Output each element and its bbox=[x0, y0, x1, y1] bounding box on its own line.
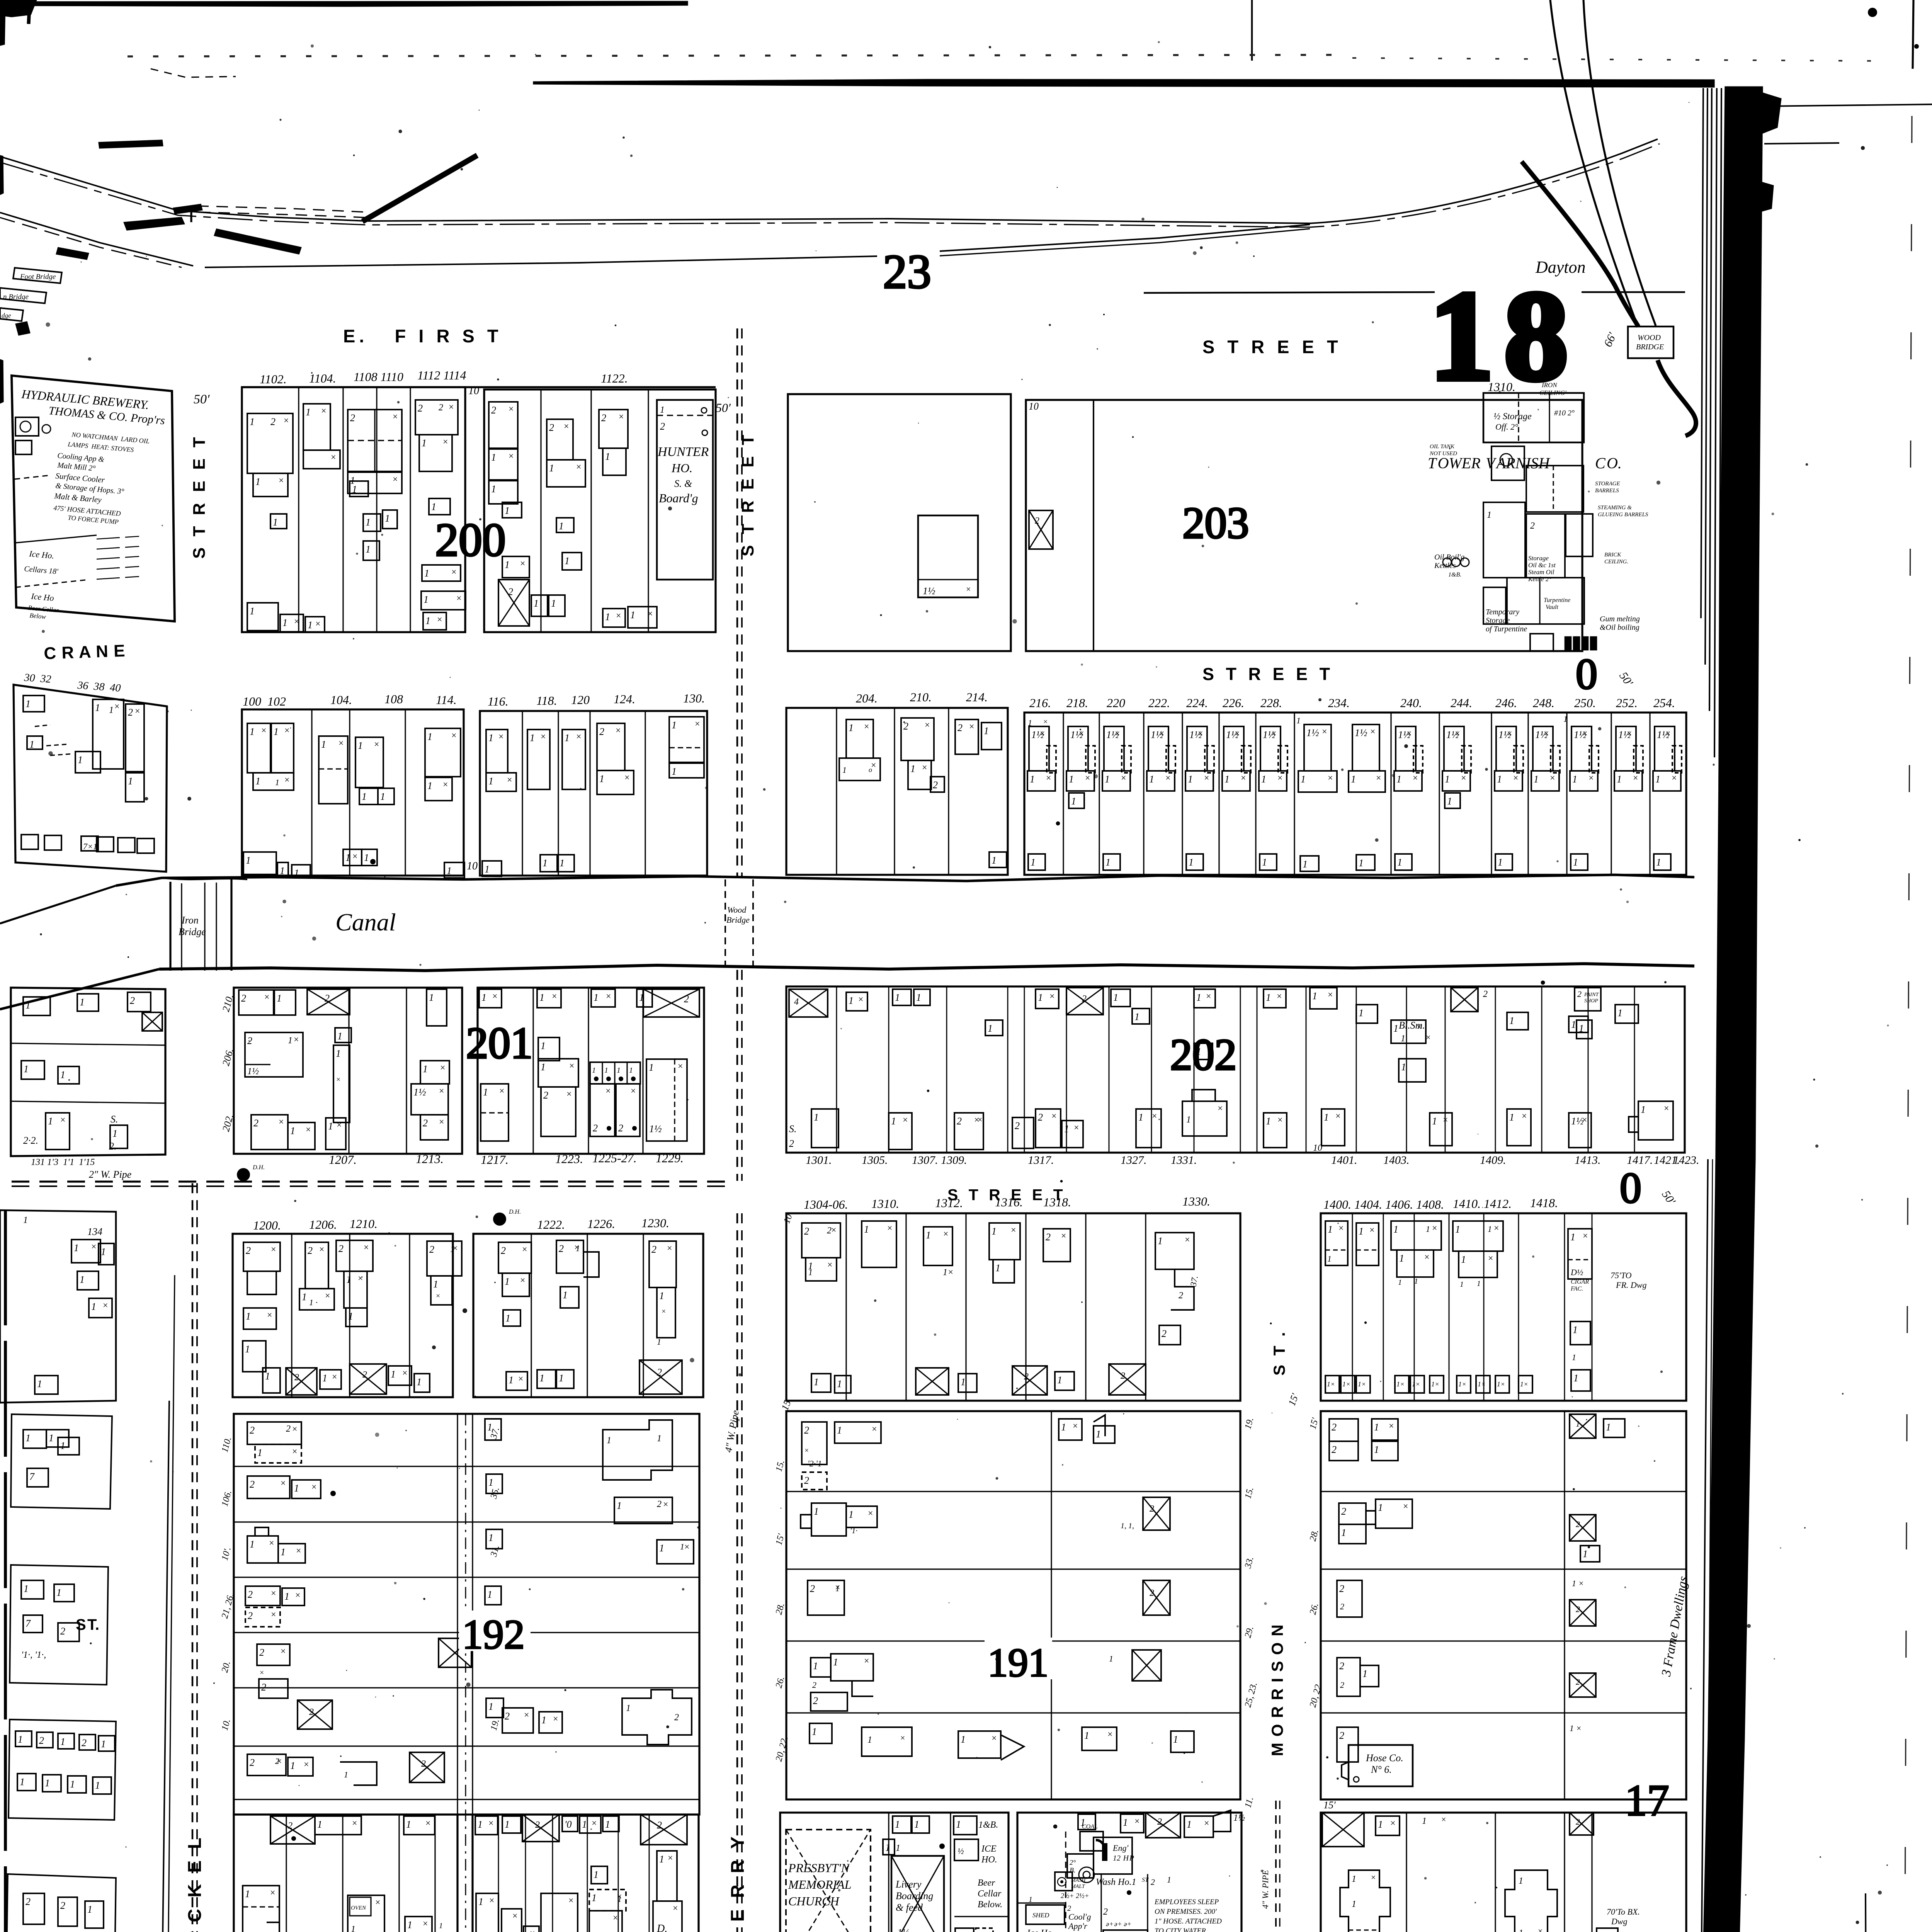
svg-text:×: × bbox=[1204, 1818, 1209, 1828]
svg-text:1206.: 1206. bbox=[309, 1218, 337, 1231]
svg-text:1: 1 bbox=[439, 1922, 443, 1930]
svg-text:1½: 1½ bbox=[649, 1123, 662, 1134]
svg-text:1: 1 bbox=[246, 855, 251, 866]
svg-text:0: 0 bbox=[1620, 1164, 1641, 1212]
svg-text:×: × bbox=[616, 611, 621, 621]
svg-text:×: × bbox=[1376, 773, 1381, 783]
svg-text:×: × bbox=[60, 1115, 66, 1125]
svg-text:SHED: SHED bbox=[1032, 1912, 1049, 1919]
svg-text:1: 1 bbox=[1030, 774, 1035, 785]
svg-text:ʹ1·: ʹ1· bbox=[850, 1527, 857, 1535]
svg-text:×: × bbox=[624, 773, 630, 783]
svg-text:1317.: 1317. bbox=[1028, 1154, 1054, 1167]
svg-text:Appʹr: Appʹr bbox=[1068, 1921, 1087, 1931]
svg-text:1: 1 bbox=[559, 520, 564, 532]
svg-text:1: 1 bbox=[576, 1243, 580, 1253]
svg-text:2: 2 bbox=[1530, 521, 1535, 531]
svg-text:OIL TANK: OIL TANK bbox=[1430, 444, 1455, 450]
svg-text:104.: 104. bbox=[330, 693, 352, 707]
svg-text:E. F I R S T: E. F I R S T bbox=[343, 326, 502, 346]
svg-text:×: × bbox=[969, 722, 975, 732]
svg-text:10: 10 bbox=[1029, 401, 1039, 412]
svg-text:1: 1 bbox=[1138, 1112, 1143, 1123]
svg-text:1210.: 1210. bbox=[350, 1217, 378, 1231]
svg-text:1: 1 bbox=[1432, 1116, 1437, 1127]
svg-text:1418.: 1418. bbox=[1530, 1196, 1558, 1210]
svg-text:×: × bbox=[1390, 1818, 1396, 1828]
svg-text:1316.: 1316. bbox=[995, 1195, 1023, 1209]
svg-text:S T R E E T: S T R E E T bbox=[1202, 337, 1342, 357]
svg-text:×: × bbox=[296, 1546, 301, 1556]
svg-text:1: 1 bbox=[1393, 1224, 1398, 1235]
svg-text:×: × bbox=[440, 1063, 446, 1073]
svg-text:1: 1 bbox=[992, 855, 997, 866]
svg-text:×: × bbox=[576, 732, 582, 742]
svg-text:2: 2 bbox=[618, 1122, 623, 1134]
svg-text:ə+ ə+ ə+: ə+ ə+ ə+ bbox=[1106, 1920, 1131, 1928]
svg-text:×: × bbox=[423, 1919, 428, 1929]
svg-text:1: 1 bbox=[95, 1780, 100, 1791]
svg-text:×: × bbox=[1085, 773, 1090, 783]
svg-text:1: 1 bbox=[626, 1703, 631, 1713]
svg-text:Bridge: Bridge bbox=[726, 915, 750, 925]
svg-text:S.: S. bbox=[789, 1123, 797, 1134]
svg-text:1: 1 bbox=[1509, 1112, 1514, 1123]
svg-text:1301.: 1301. bbox=[806, 1154, 832, 1167]
svg-text:201: 201 bbox=[466, 1019, 533, 1068]
svg-text:2: 2 bbox=[674, 1713, 679, 1723]
svg-text:o: o bbox=[869, 766, 872, 774]
svg-text:×: × bbox=[270, 1888, 276, 1898]
svg-text:STEAMING &: STEAMING & bbox=[1598, 505, 1632, 511]
svg-text:1: 1 bbox=[505, 1819, 510, 1830]
svg-text:S T R E E T: S T R E E T bbox=[190, 434, 209, 559]
svg-text:1: 1 bbox=[1399, 1253, 1404, 1264]
svg-text:×: × bbox=[667, 1243, 672, 1253]
svg-text:7: 7 bbox=[26, 1618, 31, 1629]
svg-text:216.: 216. bbox=[1029, 696, 1051, 710]
svg-text:×: × bbox=[858, 995, 864, 1005]
svg-text:1: 1 bbox=[617, 1894, 622, 1904]
svg-text:1: 1 bbox=[328, 1121, 333, 1132]
svg-text:1: 1 bbox=[336, 1048, 341, 1059]
svg-text:1: 1 bbox=[1393, 1023, 1398, 1034]
svg-text:1: 1 bbox=[344, 1770, 348, 1779]
svg-text:1: 1 bbox=[391, 1369, 396, 1380]
svg-text:1: 1 bbox=[366, 544, 371, 555]
svg-text:1: 1 bbox=[849, 722, 854, 733]
svg-text:×: × bbox=[673, 1903, 678, 1913]
svg-text:1: 1 bbox=[1069, 774, 1074, 785]
svg-text:1: 1 bbox=[864, 1224, 869, 1235]
svg-text:Below.: Below. bbox=[978, 1900, 1002, 1910]
svg-text:1: 1 bbox=[594, 992, 599, 1003]
svg-text:1: 1 bbox=[1352, 1899, 1356, 1909]
svg-text:2: 2 bbox=[933, 779, 938, 791]
svg-text:192: 192 bbox=[462, 1612, 525, 1658]
svg-text:×: × bbox=[260, 1668, 264, 1677]
svg-text:1: 1 bbox=[250, 1539, 255, 1550]
svg-text:1½: 1½ bbox=[1355, 727, 1367, 738]
svg-text:1: 1 bbox=[592, 1892, 597, 1903]
svg-text:1: 1 bbox=[1071, 796, 1076, 807]
svg-text:ʹ1·, ʹ1·,: ʹ1·, ʹ1·, bbox=[21, 1650, 46, 1660]
svg-text:1310.: 1310. bbox=[1488, 380, 1515, 394]
svg-text:1: 1 bbox=[814, 1506, 819, 1517]
svg-text:1: 1 bbox=[629, 1066, 633, 1075]
svg-text:×: × bbox=[498, 732, 504, 742]
svg-text:#10 2°: #10 2° bbox=[1554, 409, 1575, 417]
svg-text:1: 1 bbox=[541, 1061, 546, 1073]
svg-text:1: 1 bbox=[60, 1736, 65, 1747]
svg-text:S.: S. bbox=[111, 1114, 118, 1125]
svg-text:×: × bbox=[831, 1225, 837, 1235]
svg-text:×: × bbox=[648, 609, 653, 619]
svg-text:1: 1 bbox=[1113, 992, 1118, 1003]
svg-text:×: × bbox=[1609, 1930, 1614, 1932]
svg-text:203: 203 bbox=[1182, 498, 1249, 548]
svg-text:1×: 1× bbox=[1412, 1380, 1420, 1388]
svg-text:1: 1 bbox=[24, 1063, 29, 1075]
svg-text:2: 2 bbox=[957, 1116, 962, 1127]
svg-text:1: 1 bbox=[1563, 714, 1568, 724]
svg-text:T OWER V ARNISH: T OWER V ARNISH bbox=[1428, 454, 1551, 472]
svg-text:×: × bbox=[606, 992, 611, 1002]
svg-text:1: 1 bbox=[87, 1904, 92, 1915]
svg-text:1: 1 bbox=[1477, 1279, 1481, 1288]
svg-text:×: × bbox=[1550, 773, 1555, 783]
svg-text:224.: 224. bbox=[1186, 696, 1208, 710]
svg-text:7×1: 7×1 bbox=[83, 842, 97, 851]
svg-text:1: 1 bbox=[835, 1583, 840, 1593]
svg-text:2: 2 bbox=[804, 1425, 809, 1436]
svg-text:1: 1 bbox=[605, 611, 610, 622]
svg-text:1: 1 bbox=[1296, 716, 1301, 725]
svg-text:Temporary: Temporary bbox=[1486, 608, 1519, 616]
svg-text:2: 2 bbox=[957, 722, 963, 733]
svg-text:½ Storage: ½ Storage bbox=[1493, 412, 1532, 422]
svg-text:1: 1 bbox=[617, 1500, 622, 1511]
svg-text:1: 1 bbox=[24, 1583, 29, 1594]
svg-text:×: × bbox=[524, 1710, 529, 1720]
svg-text:1: 1 bbox=[849, 1509, 854, 1520]
svg-text:FAC.: FAC. bbox=[1570, 1286, 1583, 1292]
svg-text:×: × bbox=[332, 1372, 337, 1382]
svg-text:1½: 1½ bbox=[413, 1087, 426, 1098]
svg-text:1: 1 bbox=[1519, 1928, 1523, 1932]
svg-text:1: 1 bbox=[78, 754, 83, 765]
svg-text:×: × bbox=[592, 1818, 597, 1828]
svg-text:D.H.: D.H. bbox=[509, 1209, 521, 1215]
svg-text:254.: 254. bbox=[1653, 696, 1675, 710]
svg-text:×: × bbox=[1633, 773, 1638, 783]
svg-text:2: 2 bbox=[1035, 516, 1039, 526]
svg-text:1: 1 bbox=[867, 1735, 872, 1745]
svg-text:2: 2 bbox=[657, 1820, 662, 1831]
svg-text:1122.: 1122. bbox=[601, 371, 628, 385]
svg-text:1: 1 bbox=[109, 705, 114, 715]
svg-text:ʹ0: ʹ0 bbox=[565, 1819, 572, 1830]
svg-text:1: 1 bbox=[245, 1888, 250, 1900]
svg-text:2: 2 bbox=[1150, 1504, 1154, 1514]
svg-text:1: 1 bbox=[306, 406, 311, 418]
svg-text:1: 1 bbox=[549, 463, 554, 474]
svg-text:×: × bbox=[1073, 1421, 1078, 1431]
svg-text:1: 1 bbox=[478, 1896, 483, 1907]
svg-text:PRESBYTʹN: PRESBYTʹN bbox=[788, 1861, 850, 1875]
svg-text:1: 1 bbox=[491, 483, 496, 495]
svg-text:1: 1 bbox=[1105, 774, 1110, 785]
svg-text:1: 1 bbox=[541, 1040, 546, 1051]
svg-text:2: 2 bbox=[1576, 1817, 1580, 1827]
svg-text:1112 1114: 1112 1114 bbox=[417, 368, 466, 382]
svg-text:2: 2 bbox=[1332, 1444, 1337, 1455]
svg-text:OVEN: OVEN bbox=[351, 1905, 366, 1911]
svg-text:Foot Bridge: Foot Bridge bbox=[20, 273, 56, 281]
svg-text:×: × bbox=[613, 1913, 618, 1923]
svg-text:1: 1 bbox=[1158, 1235, 1163, 1247]
svg-text:×: × bbox=[443, 780, 448, 790]
svg-text:1×: 1× bbox=[1327, 1380, 1335, 1388]
svg-text:& feed: & feed bbox=[896, 1902, 923, 1913]
svg-text:1: 1 bbox=[423, 594, 429, 605]
svg-text:×: × bbox=[1369, 1225, 1375, 1235]
svg-text:1: 1 bbox=[1374, 1444, 1379, 1455]
svg-text:1: 1 bbox=[837, 1378, 842, 1389]
svg-text:2: 2 bbox=[286, 1424, 291, 1434]
svg-text:1: 1 bbox=[1519, 1876, 1523, 1886]
svg-text:1: 1 bbox=[80, 1274, 85, 1285]
svg-text:1 ×: 1 × bbox=[1572, 1578, 1584, 1588]
svg-text:1: 1 bbox=[348, 1311, 353, 1322]
svg-text:1: 1 bbox=[995, 1262, 1000, 1274]
svg-text:1: 1 bbox=[509, 1374, 514, 1386]
svg-text:1: 1 bbox=[433, 1279, 438, 1290]
svg-text:×: × bbox=[922, 763, 927, 773]
svg-text:×: × bbox=[304, 1760, 309, 1770]
svg-text:2: 2 bbox=[1024, 1372, 1029, 1382]
svg-text:1: 1 bbox=[1426, 1224, 1430, 1234]
svg-text:1½: 1½ bbox=[897, 1927, 910, 1932]
svg-text:2·2.: 2·2. bbox=[23, 1135, 38, 1146]
svg-text:×: × bbox=[1544, 729, 1549, 739]
svg-text:MASH: MASH bbox=[1071, 1878, 1086, 1883]
svg-text:1: 1 bbox=[128, 776, 133, 787]
svg-text:1: 1 bbox=[605, 1819, 610, 1830]
svg-text:2: 2 bbox=[60, 1900, 65, 1911]
svg-text:FR. Dwg: FR. Dwg bbox=[1616, 1280, 1646, 1290]
svg-text:×: × bbox=[1371, 1872, 1376, 1882]
svg-text:2: 2 bbox=[1483, 989, 1488, 999]
svg-text:1400. 1404. 1406. 1408.: 1400. 1404. 1406. 1408. bbox=[1323, 1197, 1444, 1211]
svg-text:Boardʹg: Boardʹg bbox=[659, 491, 698, 505]
svg-text:50′: 50′ bbox=[716, 401, 731, 415]
svg-text:×: × bbox=[338, 738, 344, 748]
svg-text:1: 1 bbox=[290, 1760, 295, 1771]
svg-text:1: 1 bbox=[1378, 1502, 1383, 1513]
svg-text:Wash Ho.1: Wash Ho.1 bbox=[1096, 1877, 1136, 1887]
svg-text:1: 1 bbox=[1262, 857, 1267, 868]
svg-text:1229.: 1229. bbox=[656, 1151, 684, 1165]
svg-text:1: 1 bbox=[505, 1276, 510, 1287]
svg-text:2: 2 bbox=[657, 1499, 662, 1509]
svg-text:×: × bbox=[1165, 773, 1171, 783]
svg-text:1: 1 bbox=[60, 1440, 65, 1451]
svg-text:×: × bbox=[900, 1733, 905, 1743]
svg-text:130.: 130. bbox=[683, 691, 705, 705]
svg-text:204.: 204. bbox=[856, 691, 878, 705]
svg-text:1207.: 1207. bbox=[329, 1153, 357, 1167]
svg-text:1×: 1× bbox=[943, 1267, 954, 1277]
svg-text:×: × bbox=[662, 1307, 666, 1316]
svg-text:×: × bbox=[402, 1368, 408, 1378]
svg-text:×: × bbox=[1049, 992, 1055, 1002]
svg-text:×: × bbox=[1424, 1252, 1430, 1262]
svg-text:1: 1 bbox=[1378, 1819, 1383, 1830]
svg-text:2: 2 bbox=[130, 995, 135, 1006]
svg-text:1: 1 bbox=[250, 416, 255, 427]
svg-text:1: 1 bbox=[961, 1734, 966, 1745]
svg-text:1: 1 bbox=[1187, 1819, 1192, 1830]
svg-text:2: 2 bbox=[423, 1117, 428, 1129]
svg-text:1217.: 1217. bbox=[481, 1153, 509, 1167]
svg-text:×: × bbox=[1277, 992, 1282, 1002]
svg-text:1: 1 bbox=[1397, 857, 1402, 868]
svg-text:×: × bbox=[331, 452, 336, 463]
svg-text:×: × bbox=[576, 462, 582, 472]
svg-text:1: 1 bbox=[630, 609, 635, 621]
svg-text:1: 1 bbox=[910, 763, 915, 774]
svg-text:2: 2 bbox=[593, 1122, 598, 1134]
svg-text:1, 1,: 1, 1, bbox=[1121, 1522, 1134, 1530]
svg-text:202: 202 bbox=[1170, 1030, 1237, 1079]
svg-text:Ice Ho: Ice Ho bbox=[31, 591, 54, 603]
svg-text:214.: 214. bbox=[966, 690, 988, 704]
svg-text:1: 1 bbox=[255, 476, 260, 487]
svg-text:×: × bbox=[616, 726, 621, 736]
svg-text:1102.: 1102. bbox=[260, 372, 287, 386]
svg-text:1: 1 bbox=[424, 568, 429, 579]
svg-text:2: 2 bbox=[338, 1243, 344, 1254]
svg-text:×: × bbox=[1538, 1926, 1543, 1932]
svg-text:1: 1 bbox=[273, 517, 278, 528]
svg-text:1: 1 bbox=[1641, 1104, 1646, 1115]
svg-text:1: 1 bbox=[814, 1112, 819, 1123]
svg-text:2: 2 bbox=[1576, 1519, 1580, 1529]
svg-text:1: 1 bbox=[74, 1242, 79, 1253]
svg-text:D.: D. bbox=[598, 1930, 609, 1932]
svg-text:×: × bbox=[1582, 1115, 1587, 1125]
svg-text:1: 1 bbox=[91, 1301, 96, 1312]
svg-text:2: 2 bbox=[1046, 1231, 1051, 1243]
svg-text:TO CITY WATER.: TO CITY WATER. bbox=[1155, 1927, 1208, 1932]
svg-text:2: 2 bbox=[1339, 1583, 1344, 1594]
svg-text:1: 1 bbox=[605, 451, 610, 462]
svg-text:×: × bbox=[337, 1120, 342, 1130]
svg-text:2: 2 bbox=[601, 412, 606, 423]
svg-text:Ice Ho.: Ice Ho. bbox=[1027, 1928, 1054, 1932]
svg-text:×: × bbox=[1271, 729, 1277, 739]
svg-text:2: 2 bbox=[261, 1682, 266, 1693]
svg-text:1: 1 bbox=[1266, 1116, 1271, 1127]
svg-text:1: 1 bbox=[1096, 1429, 1101, 1440]
svg-text:2: 2 bbox=[651, 1244, 656, 1255]
svg-text:1×: 1× bbox=[1358, 1380, 1366, 1388]
svg-text:Canal: Canal bbox=[335, 908, 396, 936]
svg-text:1: 1 bbox=[112, 1128, 117, 1139]
svg-text:1: 1 bbox=[563, 1289, 568, 1301]
svg-text:2: 2 bbox=[1340, 1602, 1344, 1611]
svg-text:×: × bbox=[804, 1446, 809, 1455]
svg-text:1: 1 bbox=[659, 1543, 664, 1554]
svg-text:1: 1 bbox=[321, 739, 326, 750]
svg-text:2: 2 bbox=[508, 586, 513, 597]
svg-text:1: 1 bbox=[284, 1591, 289, 1602]
svg-text:×: × bbox=[868, 1509, 873, 1519]
svg-text:×: × bbox=[1403, 1502, 1408, 1512]
svg-text:1104.: 1104. bbox=[309, 371, 336, 385]
svg-text:×: × bbox=[439, 1086, 444, 1096]
svg-text:1: 1 bbox=[1573, 857, 1578, 868]
svg-text:×: × bbox=[284, 726, 290, 736]
svg-text:2: 2 bbox=[1157, 1817, 1162, 1827]
svg-text:×: × bbox=[1152, 1111, 1157, 1121]
svg-text:×: × bbox=[1588, 773, 1594, 783]
svg-text:of Turpentine: of Turpentine bbox=[1486, 625, 1527, 633]
svg-text:2: 2 bbox=[1038, 1112, 1043, 1123]
svg-text:1×: 1× bbox=[1431, 1380, 1439, 1388]
svg-text:2: 2 bbox=[1576, 1604, 1580, 1614]
svg-text:1: 1 bbox=[1460, 1280, 1464, 1289]
svg-text:½: ½ bbox=[957, 1846, 964, 1856]
svg-text:1: 1 bbox=[1583, 1548, 1588, 1560]
svg-text:1: 1 bbox=[1149, 774, 1154, 785]
svg-text:×: × bbox=[512, 1911, 518, 1921]
svg-text:Cellar: Cellar bbox=[978, 1889, 1002, 1899]
svg-text:×: × bbox=[552, 992, 557, 1002]
svg-text:2: 2 bbox=[810, 1583, 815, 1594]
svg-text:1: 1 bbox=[478, 1819, 483, 1830]
svg-text:1: 1 bbox=[294, 867, 299, 879]
svg-text:1: 1 bbox=[1573, 1372, 1578, 1384]
svg-text:4″ W. PIPE: 4″ W. PIPE bbox=[1260, 1870, 1270, 1909]
svg-text:×: × bbox=[269, 1538, 274, 1548]
svg-text:1: 1 bbox=[660, 405, 665, 415]
svg-text:×: × bbox=[1417, 1022, 1422, 1032]
svg-text:1: 1 bbox=[351, 1924, 355, 1932]
svg-text:10: 10 bbox=[1313, 1143, 1322, 1153]
svg-text:×: × bbox=[1198, 729, 1203, 739]
svg-text:EMPLOYEES SLEEP: EMPLOYEES SLEEP bbox=[1154, 1898, 1219, 1906]
svg-text:×: × bbox=[281, 1478, 286, 1488]
svg-text:×: × bbox=[1507, 729, 1512, 739]
svg-text:Bridge: Bridge bbox=[179, 926, 206, 937]
svg-text:191: 191 bbox=[988, 1640, 1049, 1685]
svg-text:1: 1 bbox=[1606, 1422, 1611, 1433]
svg-text:1: 1 bbox=[345, 852, 350, 863]
svg-text:1: 1 bbox=[956, 1819, 961, 1830]
svg-text:×: × bbox=[992, 1733, 997, 1743]
svg-text:1: 1 bbox=[539, 992, 544, 1003]
svg-text:2: 2 bbox=[1121, 1371, 1125, 1381]
svg-text:2: 2 bbox=[827, 1226, 832, 1236]
svg-text:×: × bbox=[619, 412, 624, 422]
svg-text:1 ·: 1 · bbox=[309, 1298, 318, 1307]
svg-text:×: × bbox=[352, 852, 358, 862]
svg-text:Vault: Vault bbox=[1546, 604, 1558, 611]
svg-text:Dwg: Dwg bbox=[1611, 1917, 1628, 1926]
svg-text:244.: 244. bbox=[1451, 696, 1472, 710]
